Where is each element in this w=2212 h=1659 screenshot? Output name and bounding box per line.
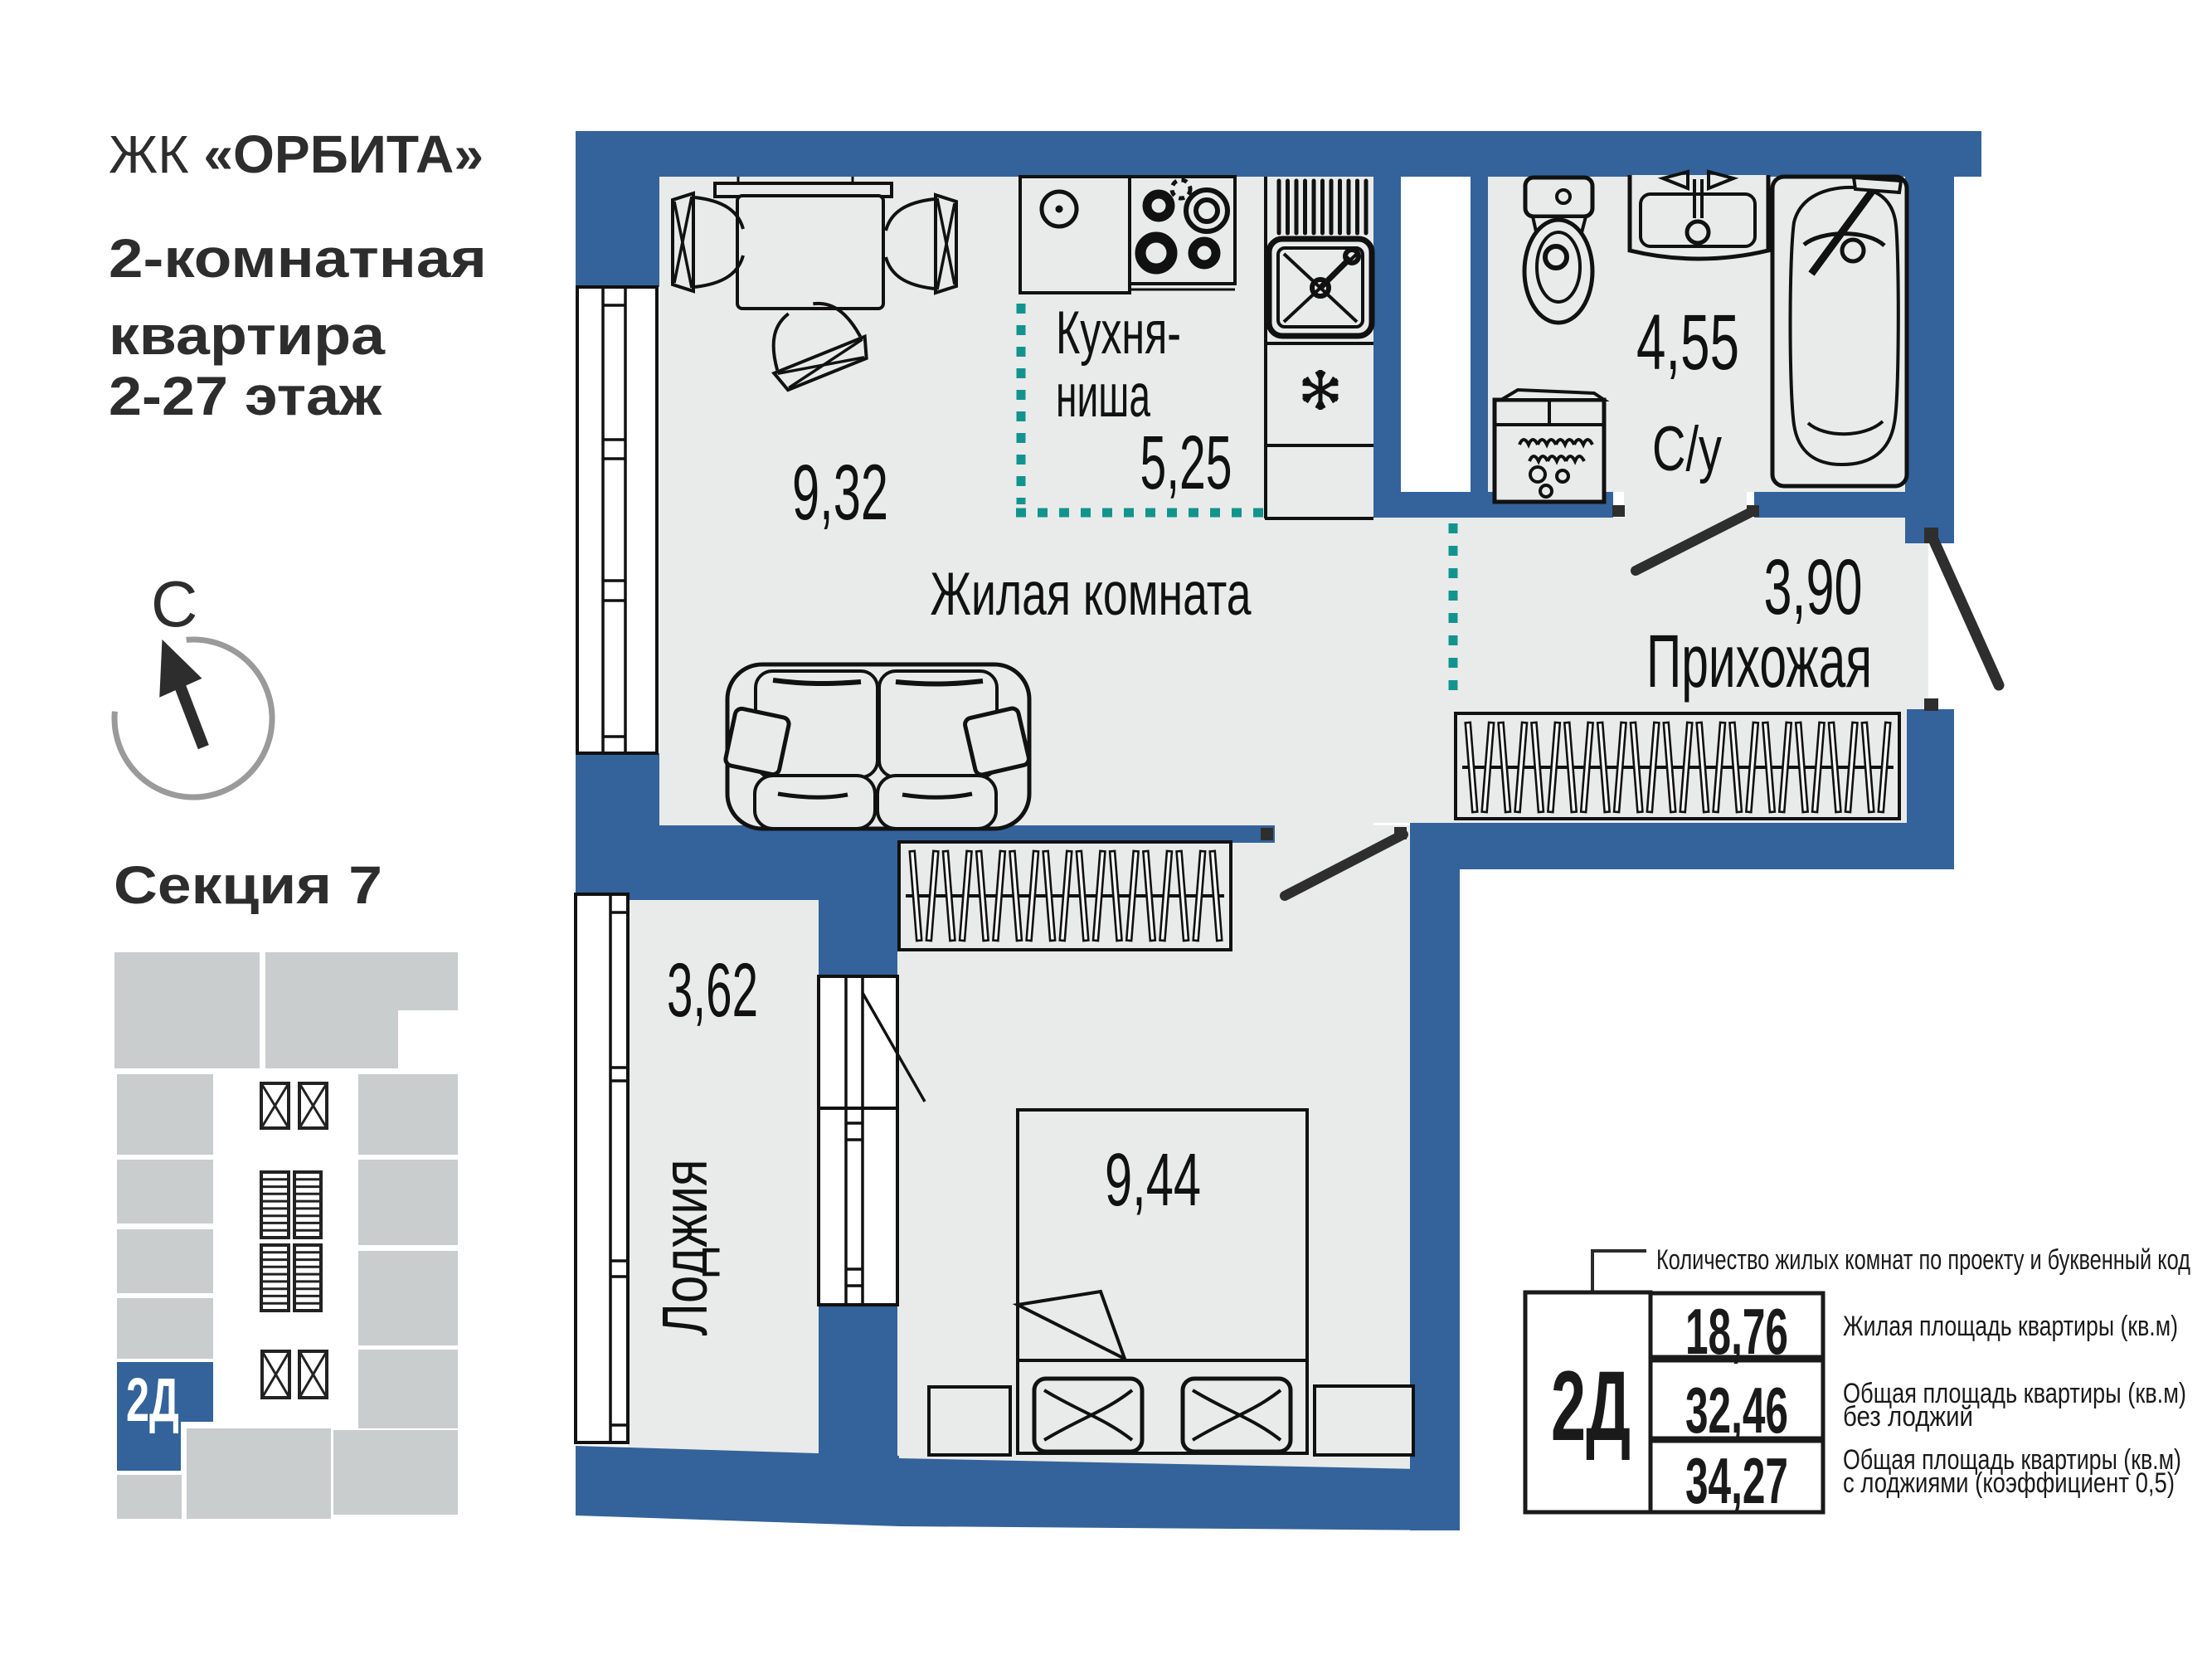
svg-text:3,62: 3,62 — [667, 948, 758, 1033]
svg-text:9,32: 9,32 — [792, 449, 888, 537]
svg-text:Лоджия: Лоджия — [649, 1160, 721, 1336]
svg-text:ЖК «ОРБИТА»: ЖК «ОРБИТА» — [109, 124, 484, 184]
svg-text:Секция 7: Секция 7 — [114, 855, 382, 915]
svg-text:34,27: 34,27 — [1685, 1444, 1788, 1517]
svg-text:9,44: 9,44 — [1105, 1139, 1201, 1222]
svg-text:с лоджиями (коэффициент 0,5): с лоджиями (коэффициент 0,5) — [1843, 1467, 2175, 1499]
svg-text:2Д: 2Д — [1551, 1350, 1631, 1462]
svg-text:Прихожая: Прихожая — [1646, 620, 1872, 703]
svg-text:3,90: 3,90 — [1764, 543, 1863, 631]
svg-text:2-27 этаж: 2-27 этаж — [109, 365, 382, 426]
svg-text:2-комнатная: 2-комнатная — [109, 227, 487, 289]
svg-text:Жилая комната: Жилая комната — [931, 561, 1252, 628]
svg-text:4,55: 4,55 — [1636, 299, 1739, 387]
svg-text:Количество жилых комнат по про: Количество жилых комнат по проекту и бук… — [1656, 1244, 2190, 1276]
svg-text:Кухня-: Кухня- — [1056, 299, 1181, 367]
svg-text:2Д: 2Д — [126, 1365, 179, 1434]
svg-text:Жилая площадь квартиры (кв.м): Жилая площадь квартиры (кв.м) — [1843, 1311, 2178, 1342]
svg-text:18,76: 18,76 — [1685, 1295, 1788, 1368]
svg-text:С: С — [151, 567, 197, 640]
svg-text:С/у: С/у — [1652, 414, 1722, 484]
svg-text:ниша: ниша — [1056, 362, 1150, 430]
svg-text:без лоджий: без лоджий — [1843, 1401, 1973, 1433]
svg-text:5,25: 5,25 — [1140, 421, 1232, 505]
svg-text:32,46: 32,46 — [1685, 1374, 1788, 1447]
svg-text:квартира: квартира — [109, 304, 386, 366]
